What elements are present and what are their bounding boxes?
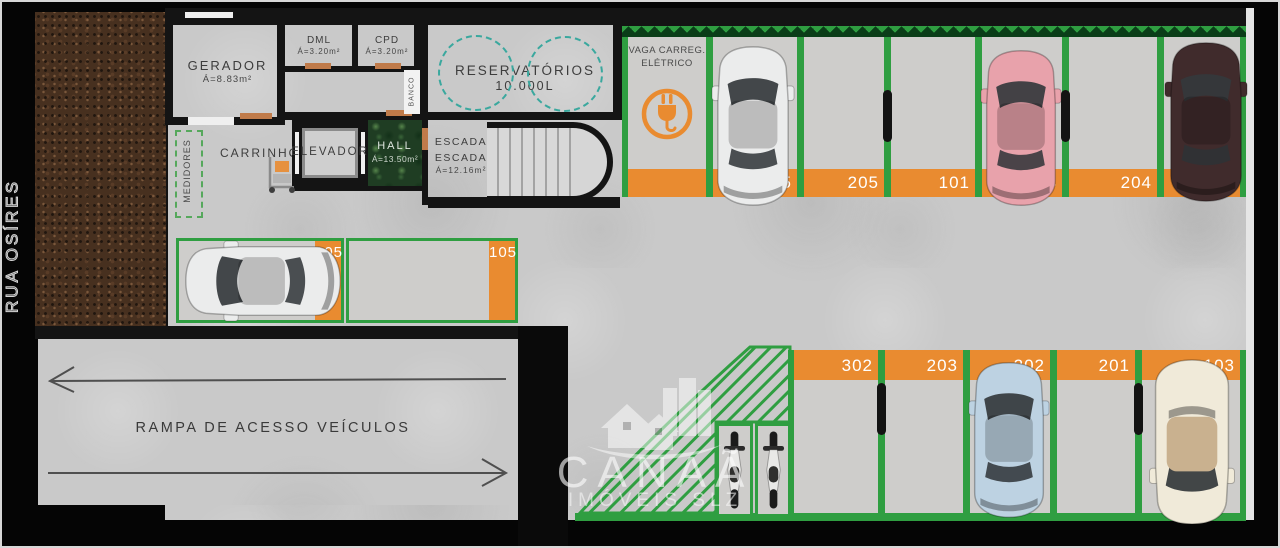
- car-202: [968, 356, 1050, 524]
- wall: [165, 8, 622, 25]
- street-name: RUA OSÍRES: [3, 169, 29, 324]
- gerador-area: Á=8.83m²: [180, 74, 275, 85]
- spot-number: 201: [1099, 356, 1130, 376]
- wheel-stop-bollard: [1061, 90, 1070, 142]
- parking-spot-ev: VAGA CARREG. ELÉTRICO: [628, 37, 706, 197]
- wall: [613, 8, 622, 120]
- medidores-label: MEDIDORES: [182, 131, 192, 211]
- car-103: [1142, 356, 1242, 528]
- parking-spot-201: 201: [1057, 350, 1135, 520]
- elevador-label: ELEVADOR: [285, 146, 375, 158]
- car-105: [182, 240, 344, 322]
- gerador-label: GERADOR: [180, 58, 275, 73]
- ramp-top-wall: [35, 326, 527, 339]
- top-parking-wall: [622, 8, 1246, 26]
- spot-stripe: 201: [1057, 350, 1135, 380]
- ev-label-line1: VAGA CARREG.: [628, 45, 706, 56]
- parking-spot-204: 204: [1069, 37, 1157, 197]
- hall-area: Á=13.50m²: [364, 154, 426, 164]
- wall: [428, 112, 618, 120]
- cpd-label: CPD: [360, 35, 414, 46]
- wall: [352, 25, 358, 72]
- dml-label: DML: [288, 35, 350, 46]
- door-marker: [305, 63, 331, 69]
- car-102: [1164, 34, 1248, 210]
- spot-stripe: 205: [804, 169, 884, 197]
- wheel-stop-bollard: [883, 90, 892, 142]
- parking-spot-205: 205: [804, 37, 884, 197]
- ramp-label: RAMPA DE ACESSO VEÍCULOS: [113, 420, 433, 436]
- parking-spot-105-b: 105: [346, 238, 518, 323]
- reservoir-tank-circle: [438, 35, 514, 111]
- escada-label-upper: ESCADA: [430, 136, 492, 148]
- hall-label: HALL: [368, 140, 422, 152]
- banco-label: BANCO: [409, 60, 416, 124]
- spot-stripe: 204: [1069, 169, 1157, 197]
- wall: [165, 25, 173, 125]
- car-104: [980, 44, 1062, 212]
- parking-spot-302: 302: [794, 350, 878, 520]
- top-parking-zigzag-border: [622, 26, 1246, 37]
- parking-spot-203: 203: [885, 350, 963, 520]
- spot-stripe: 302: [794, 350, 878, 380]
- wall: [277, 25, 285, 120]
- dml-area: Á=3.20m²: [288, 47, 350, 56]
- escada-area: Á=12.16m²: [428, 165, 494, 175]
- spot-number: 302: [842, 356, 873, 376]
- spot-number: 101: [939, 173, 970, 193]
- ev-label-line2: ELÉTRICO: [628, 58, 706, 69]
- spot-number: 203: [927, 356, 958, 376]
- door-marker: [185, 12, 233, 18]
- spot-stripe: [628, 169, 706, 197]
- spot-number: 105: [489, 244, 515, 261]
- door-marker: [375, 63, 401, 69]
- spot-stripe: 203: [885, 350, 963, 380]
- door-marker: [240, 113, 272, 119]
- spot-number: 204: [1121, 173, 1152, 193]
- hall-garden: [368, 120, 422, 186]
- wall: [420, 25, 428, 120]
- door-marker: [422, 128, 428, 150]
- cpd-area: Á=3.20m²: [360, 47, 414, 56]
- door-marker: [188, 117, 234, 125]
- reservoir-tank-circle: [527, 36, 603, 112]
- spot-stripe: 105: [489, 241, 515, 320]
- garage-floor-plan: RUA OSÍRES BANCO GERADOR Á=8.83m² DML Á=…: [0, 0, 1280, 548]
- parking-spot-101: 101: [891, 37, 975, 197]
- banco-bench: BANCO: [404, 70, 420, 114]
- watermark-subtitle: IMÓVEIS SLZ: [545, 490, 765, 512]
- ev-charger-icon: [638, 83, 696, 141]
- spot-number: 205: [848, 173, 879, 193]
- wheel-stop-bollard: [877, 383, 886, 435]
- escada-label: ESCADA: [428, 152, 494, 164]
- spot-stripe: 101: [891, 169, 975, 197]
- stair-treads: [487, 128, 571, 196]
- street-soil-strip: [35, 12, 168, 330]
- car-505: [711, 40, 795, 212]
- medidores-box: MEDIDORES: [175, 130, 203, 218]
- staircase: [487, 122, 613, 202]
